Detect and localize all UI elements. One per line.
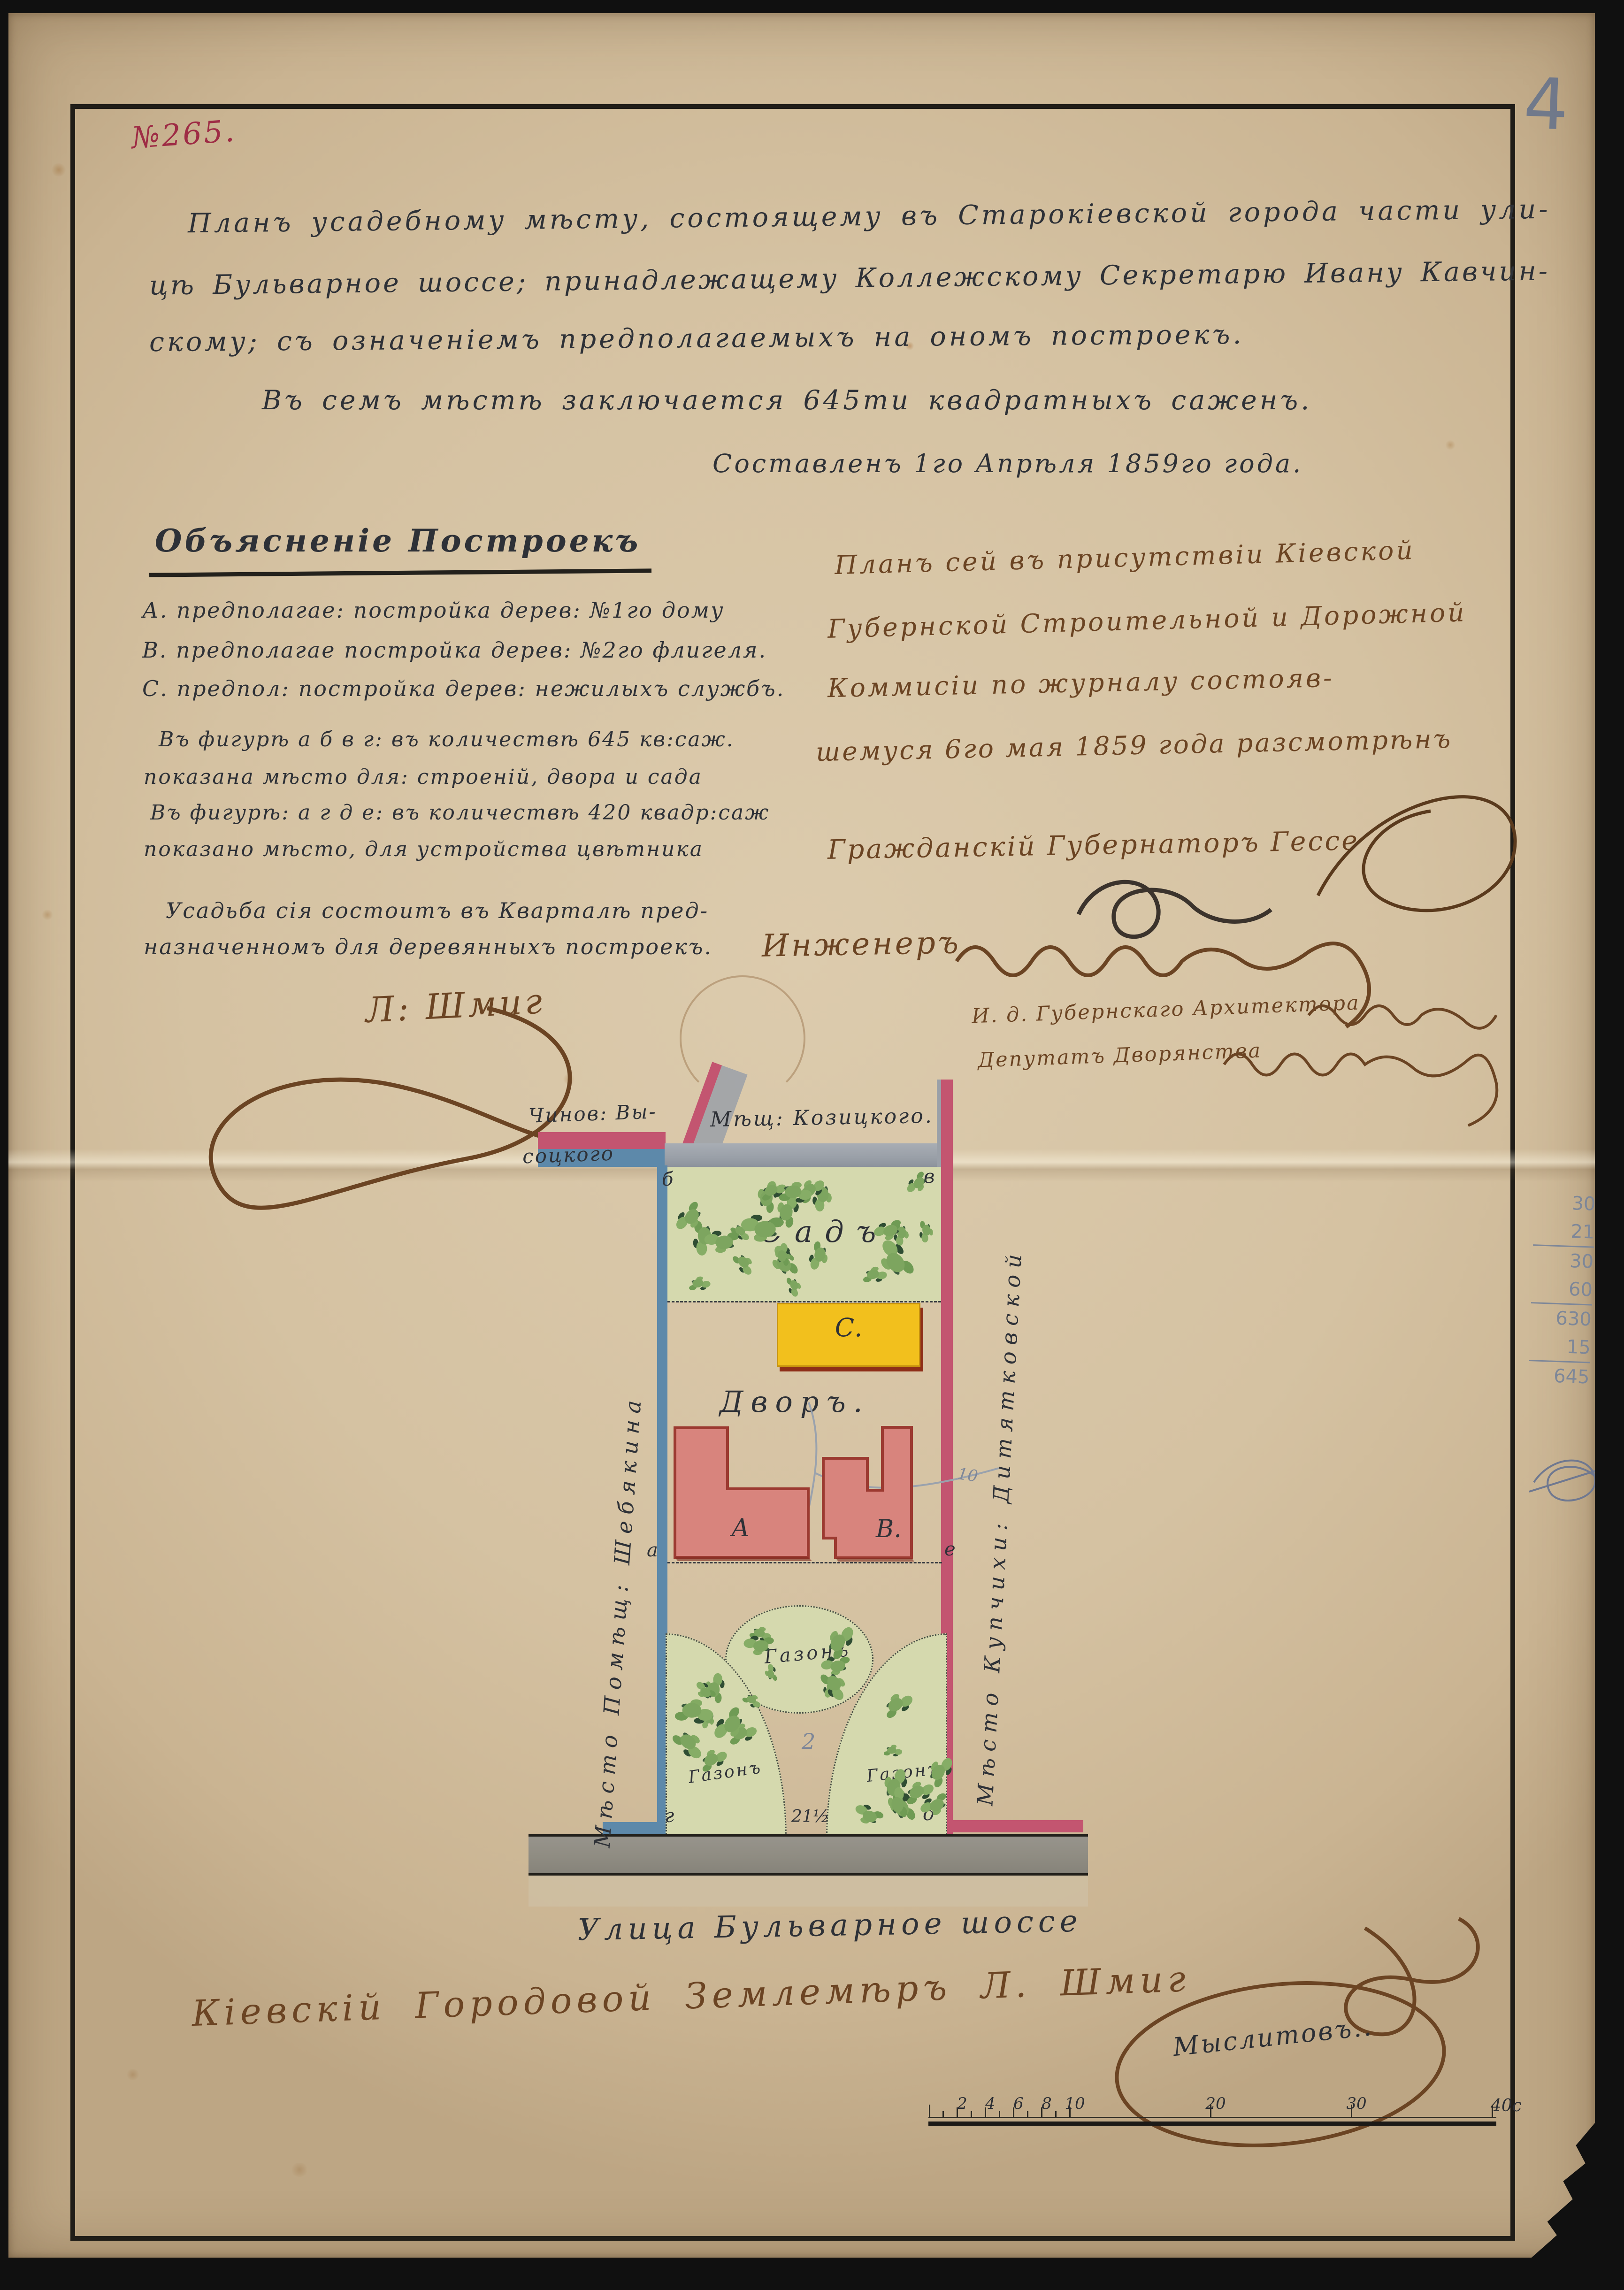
pencil-row: 30 [1523,1245,1594,1276]
building-b-label: В. [876,1515,902,1543]
east-fence-gray-edge [937,1080,941,1167]
bottom-road-shoulder [529,1876,1088,1907]
foxing-spot [126,2069,140,2080]
scale-bar-end-label: 40с [1491,2096,1522,2115]
explanation-item-a: А. предполагае: постройка дерев: №1го до… [142,597,725,623]
garden-label: Садъ [759,1215,888,1249]
bush-cluster [817,1187,829,1202]
page-corner-number: 4 [1522,63,1570,146]
neighbor-top-right: Мѣщ: Козицкого. [710,1104,934,1132]
scale-major-tick [1492,2105,1493,2117]
explanation-note-2: показана мѣсто для: строеній, двора и са… [144,765,703,789]
pencil-row: 21 [1524,1216,1595,1246]
archive-number: №265. [130,114,237,155]
scale-tick-label: 20 [1202,2094,1230,2113]
scale-tick-label: 2 [948,2094,976,2113]
measurement-center: 2 [802,1729,815,1754]
scale-tick-label: 30 [1342,2094,1371,2113]
scale-tick-label: 8 [1033,2094,1061,2113]
building-c: С. [777,1303,920,1367]
neighbor-top-left-line2: соцкого [522,1142,615,1168]
pencil-row: 30 [1524,1188,1595,1218]
pencil-row: 60 [1522,1273,1593,1304]
scale-bar-line [928,2117,1496,2118]
margin-pencil-scribble [1524,1426,1595,1520]
scanned-document-page: { "document": { "archive_number": "№265.… [0,0,1624,2290]
explanation-footer-2: назначенномъ для деревянныхъ построекъ. [144,934,712,959]
engineer-signature: Инженеръ [761,924,961,964]
corner-letter-a: а [647,1539,658,1561]
measurement-bottom: 21½ [791,1807,829,1826]
scale-tick-label: 6 [1004,2094,1033,2113]
foxing-spot [51,163,67,176]
pencil-row: 645 [1519,1361,1590,1391]
paper-sheet: №265. 4 Планъ усадебному мѣсту, состояще… [8,13,1595,2258]
explanation-note-4: показано мѣсто, для устройства цвѣтника [144,837,704,861]
title-line-4: Въ семъ мѣстѣ заключается 645ти квадратн… [262,385,1312,416]
dashed-line-a-e [667,1562,942,1563]
measurement-right: 10 [956,1464,979,1486]
scale-tick-label: 4 [976,2094,1004,2113]
scale-tick-label: 10 [1061,2094,1089,2113]
explanation-item-b: В. предполагае постройка дерев: №2го фли… [142,637,767,663]
foxing-spot [290,2163,309,2177]
garden-dashed-border [667,1301,941,1302]
neighbor-top-left-line1: Чинов: Вы- [528,1100,657,1127]
building-a-label: А [731,1514,750,1542]
pencil-row: 15 [1520,1331,1591,1362]
pencil-row: 630 [1521,1303,1592,1333]
corner-letter-b: б [662,1169,673,1190]
foxing-spot [41,910,54,920]
top-road [665,1143,942,1167]
margin-pencil-arithmetic: 3021306063015645 [1519,1188,1595,1392]
explanation-note-1: Въ фигурѣ а б в г: въ количествѣ 645 кв:… [159,728,735,751]
deputy-signature-scribble [1219,1032,1501,1107]
explanation-item-c: С. предпол: постройка дерев: нежилыхъ сл… [142,676,785,701]
scale-minor-tick [942,2111,944,2117]
foxing-spot [1445,440,1456,450]
title-line-5: Составленъ 1го Апрѣля 1859го года. [712,449,1303,478]
explanation-heading: Объясненіе Построекъ [155,522,641,559]
scale-major-tick [929,2105,930,2117]
explanation-note-3: Въ фигурѣ: а г д е: въ количествѣ 420 кв… [150,801,770,825]
scale-bar-thick-bar [928,2122,1496,2126]
east-boundary-foot [952,1820,1083,1832]
corner-letter-e: е [944,1539,956,1560]
scale-bar: 40с 2468102030 [928,2088,1510,2135]
building-c-label: С. [778,1313,919,1342]
corner-letter-v: в [924,1166,935,1187]
corner-letter-g: г [665,1805,674,1827]
explanation-footer-1: Усадьба сія состоитъ въ Кварталѣ пред- [166,898,709,923]
